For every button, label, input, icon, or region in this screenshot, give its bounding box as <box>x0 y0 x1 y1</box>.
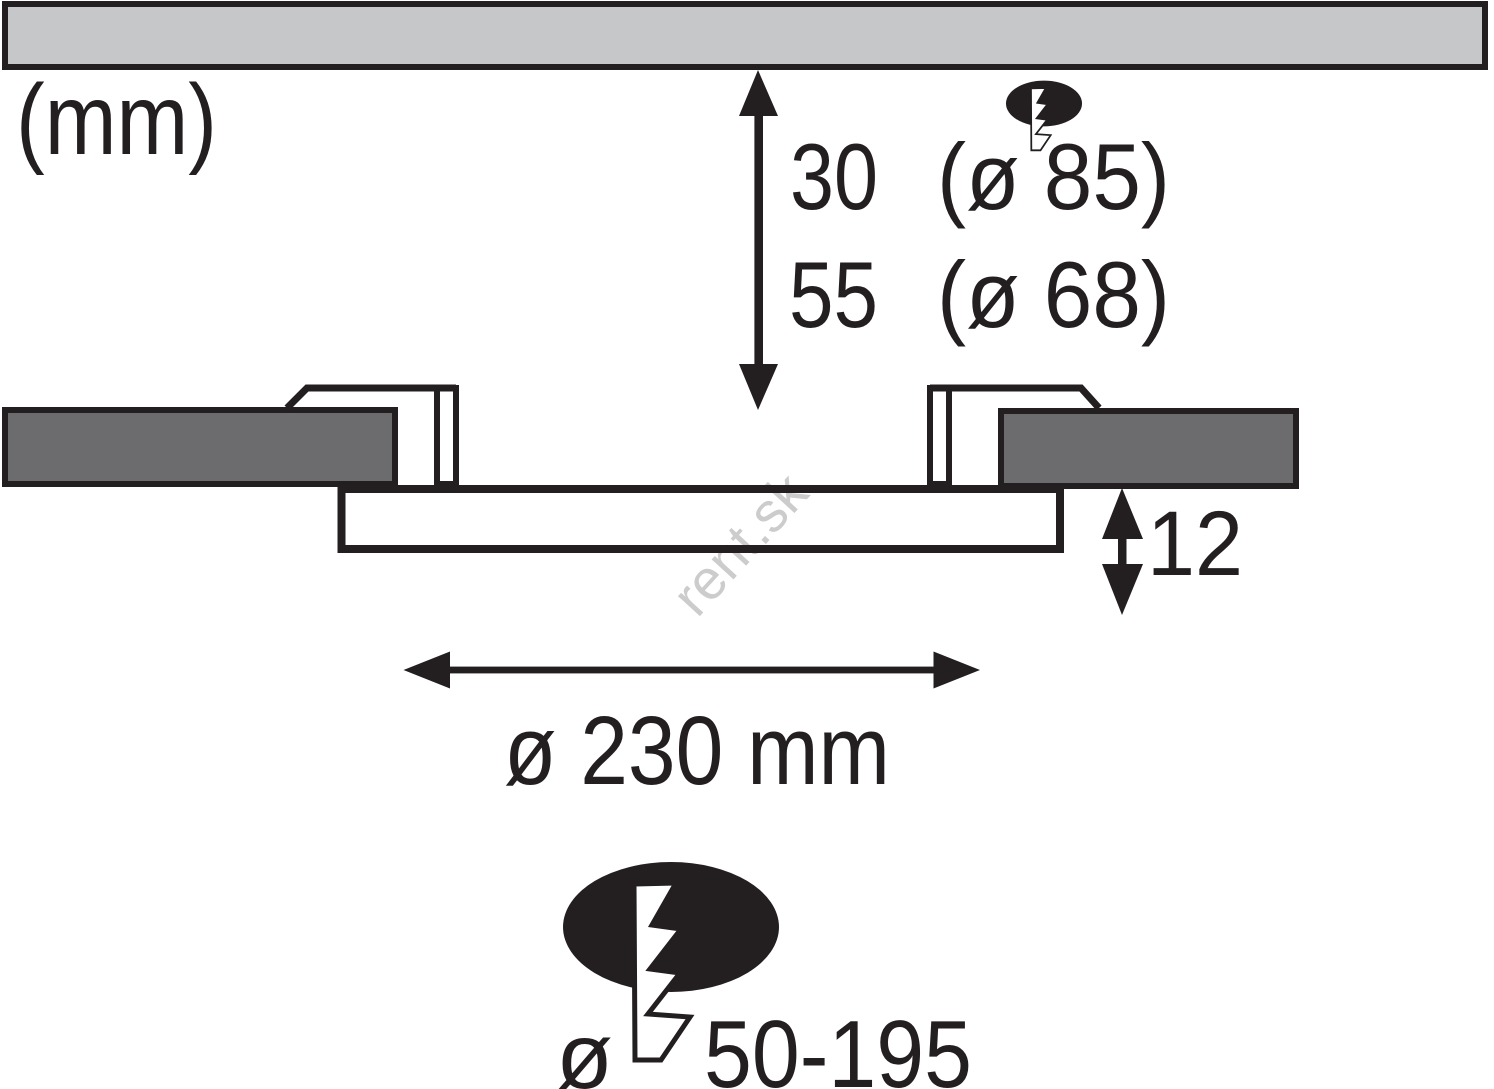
svg-text:30: 30 <box>790 124 878 229</box>
svg-text:(ø 68): (ø 68) <box>937 242 1170 347</box>
svg-text:ø: ø <box>556 1004 613 1089</box>
svg-text:50-195: 50-195 <box>704 1001 972 1089</box>
svg-text:12: 12 <box>1147 493 1243 595</box>
svg-text:ø 230 mm: ø 230 mm <box>504 696 890 805</box>
svg-text:55: 55 <box>789 242 878 347</box>
svg-text:(mm): (mm) <box>16 64 217 176</box>
svg-text:(ø 85): (ø 85) <box>937 124 1170 229</box>
